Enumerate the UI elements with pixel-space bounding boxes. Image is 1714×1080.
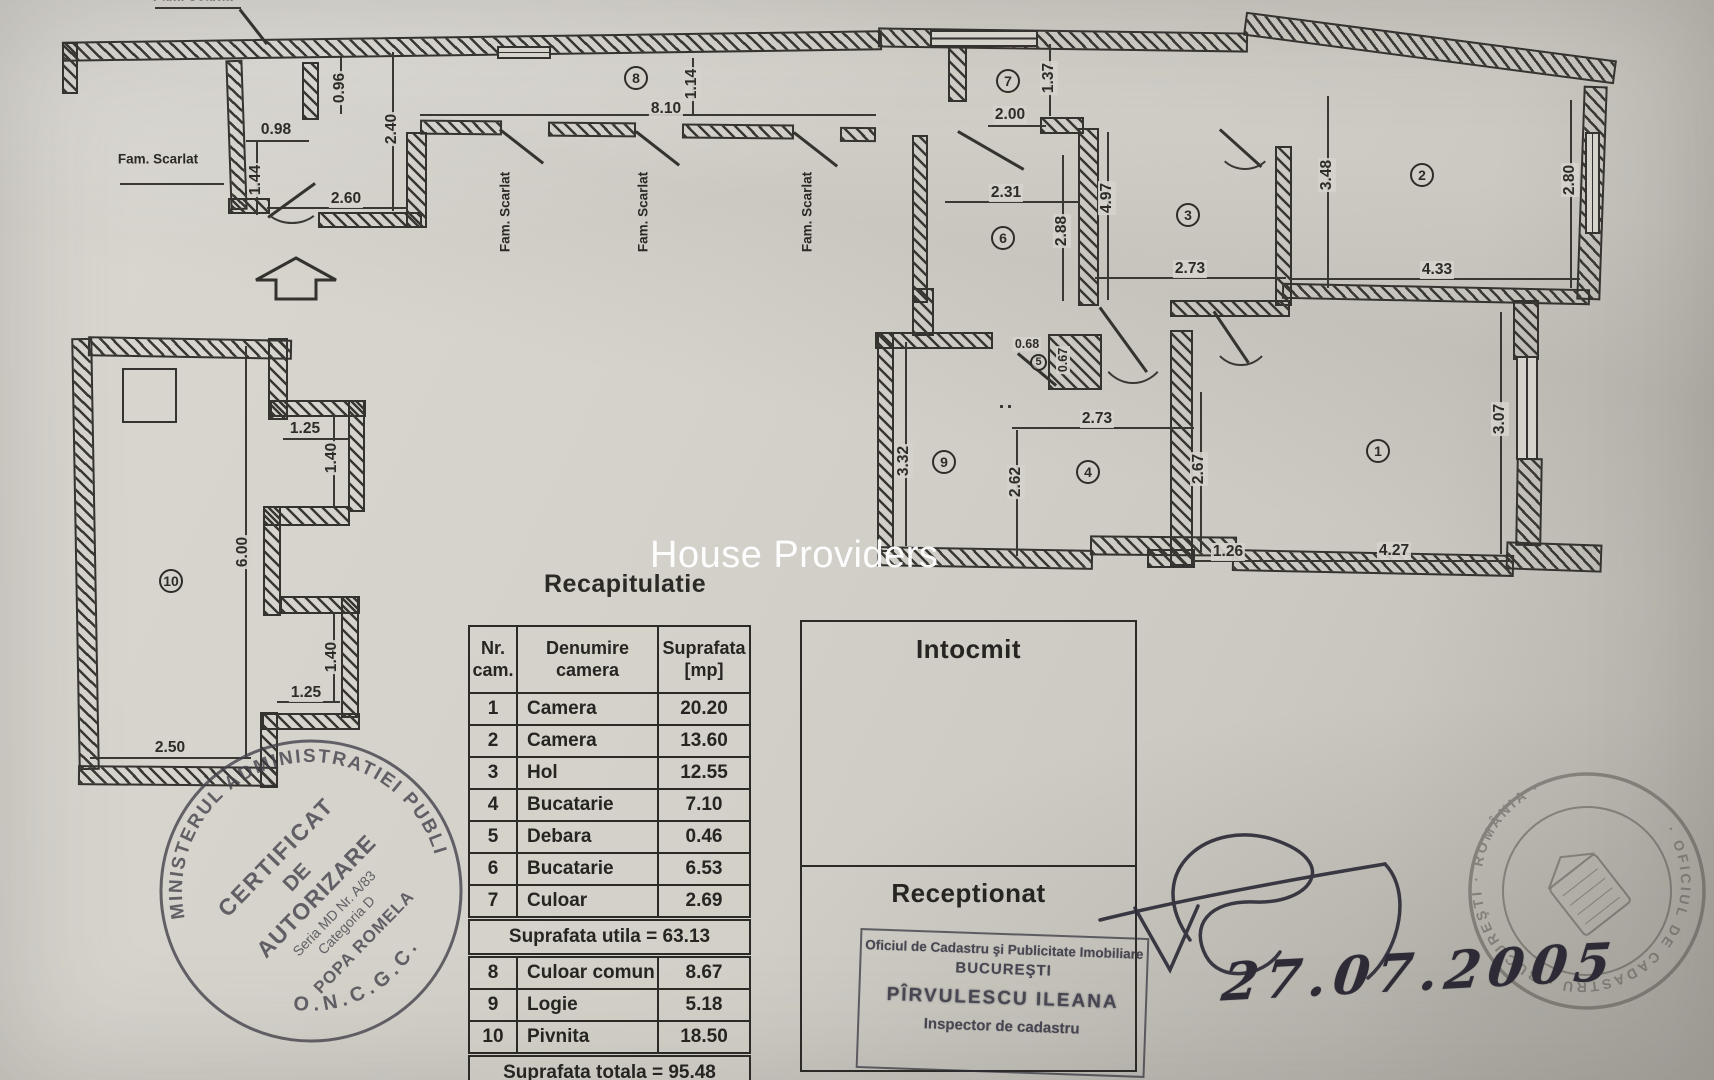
window <box>122 368 177 423</box>
dimension-line <box>1000 405 1003 408</box>
wall-segment <box>88 336 292 360</box>
cell-suprafata: 5.18 <box>658 989 750 1021</box>
subtotal-label: Suprafata utila = 63.13 <box>469 919 750 956</box>
wall-segment <box>1170 330 1193 566</box>
dimension-label: 2.50 <box>153 739 187 757</box>
wall-segment <box>420 120 502 136</box>
family-owner-label: Fam. Scarlat <box>153 0 233 4</box>
dimension-label: 1.26 <box>1211 543 1245 561</box>
dimension-label: 2.67 <box>1190 452 1208 486</box>
col-header-nr: Nr. cam. <box>469 626 517 693</box>
window <box>1585 132 1600 234</box>
cell-denumire: Culoar <box>517 885 658 919</box>
room-number-marker: 6 <box>991 226 1015 250</box>
cell-denumire: Pivnita <box>517 1021 658 1055</box>
room-number-marker: 4 <box>1076 460 1100 484</box>
cell-suprafata: 8.67 <box>658 956 750 990</box>
cell-suprafata: 0.46 <box>658 821 750 853</box>
room-number-marker: 10 <box>159 569 183 593</box>
wall-segment <box>682 124 794 140</box>
dimension-line <box>155 7 241 9</box>
entrance-arrow-icon <box>254 256 338 302</box>
cell-nr: 4 <box>469 789 517 821</box>
dimension-label: 4.97 <box>1098 181 1116 215</box>
door-leaf-line <box>793 131 838 167</box>
table-row: 1Camera20.20 <box>469 693 750 725</box>
dimension-label: 1.25 <box>288 420 322 438</box>
col-header-suprafata: Suprafata [mp] <box>658 626 750 693</box>
dimension-label: 1.37 <box>1040 61 1058 95</box>
total-row: Suprafata totala = 95.48 <box>469 1055 750 1080</box>
cell-denumire: Logie <box>517 989 658 1021</box>
table-row: 4Bucatarie7.10 <box>469 789 750 821</box>
wall-segment <box>877 332 894 552</box>
wall-segment <box>406 132 427 228</box>
dimension-label: 2.62 <box>1007 465 1025 499</box>
door-swing-arc <box>262 180 322 224</box>
cell-suprafata: 13.60 <box>658 725 750 757</box>
cell-nr: 1 <box>469 693 517 725</box>
col-header-denumire: Denumire camera <box>517 626 658 693</box>
table-row: 6Bucatarie6.53 <box>469 853 750 885</box>
scanned-floor-plan-document: 0.960.982.401.442.608.101.142.001.372.31… <box>0 0 1714 1080</box>
family-owner-label: Fam. Scarlat <box>636 172 651 252</box>
wall-segment <box>225 60 247 211</box>
room-number-marker: 1 <box>1366 439 1390 463</box>
total-label: Suprafata totala = 95.48 <box>469 1055 750 1080</box>
cell-suprafata: 7.10 <box>658 789 750 821</box>
dimension-label: 2.00 <box>993 106 1027 124</box>
cell-denumire: Camera <box>517 693 658 725</box>
cell-nr: 10 <box>469 1021 517 1055</box>
table-row: 5Debara0.46 <box>469 821 750 853</box>
wall-segment <box>1515 458 1543 546</box>
cell-denumire: Bucatarie <box>517 853 658 885</box>
dimension-line <box>120 183 224 185</box>
table-row: 2Camera13.60 <box>469 725 750 757</box>
dimension-label: 1.40 <box>323 640 341 674</box>
room-number-marker: 5 <box>1030 354 1047 371</box>
cell-suprafata: 6.53 <box>658 853 750 885</box>
dimension-line <box>1267 560 1511 562</box>
dimension-label: 0.68 <box>1013 337 1041 351</box>
dimension-label: 3.07 <box>1491 402 1509 436</box>
family-owner-label: Fam. Scarlat <box>118 152 198 167</box>
dimension-line <box>283 438 348 440</box>
wall-segment <box>948 38 967 102</box>
dimension-label: 1.25 <box>289 684 323 702</box>
dimension-label: 0.67 <box>1056 346 1070 374</box>
dimension-label: 2.73 <box>1080 410 1114 428</box>
dimension-label: 2.31 <box>989 184 1023 202</box>
door-leaf-line <box>635 130 680 166</box>
cell-suprafata: 20.20 <box>658 693 750 725</box>
table-row: 8Culoar comun8.67 <box>469 956 750 990</box>
dimension-label: 0.96 <box>331 71 349 105</box>
dimension-line <box>988 125 1046 127</box>
window <box>930 30 1038 47</box>
wall-segment <box>1275 146 1292 306</box>
wall-segment <box>840 127 876 142</box>
family-owner-label: Fam. Scarlat <box>800 172 815 252</box>
dimension-label: 1.40 <box>323 441 341 475</box>
door-leaf-line <box>957 130 1024 170</box>
dimension-label: 8.10 <box>649 100 683 118</box>
cell-nr: 2 <box>469 725 517 757</box>
wall-segment <box>912 135 928 303</box>
dimension-label: 6.00 <box>234 535 252 569</box>
cell-nr: 3 <box>469 757 517 789</box>
wall-segment <box>1232 549 1514 577</box>
room-number-marker: 9 <box>932 450 956 474</box>
subtotal-row: Suprafata utila = 63.13 <box>469 919 750 956</box>
wall-segment <box>263 506 281 616</box>
wall-segment <box>62 30 882 61</box>
room-number-marker: 8 <box>624 66 648 90</box>
wall-segment <box>71 338 100 770</box>
table-row: 10Pivnita18.50 <box>469 1021 750 1055</box>
dimension-label: 4.27 <box>1377 542 1411 560</box>
dimension-label: 3.48 <box>1318 158 1336 192</box>
door-swing-arc <box>1096 300 1170 384</box>
intocmit-label: Intocmit <box>802 634 1135 665</box>
cell-suprafata: 18.50 <box>658 1021 750 1055</box>
table-row: 3Hol12.55 <box>469 757 750 789</box>
recap-table: Nr. cam. Denumire camera Suprafata [mp] … <box>468 625 751 1080</box>
dimension-label: 2.40 <box>383 112 401 146</box>
door-leaf-line <box>499 128 544 164</box>
cell-denumire: Debara <box>517 821 658 853</box>
dimension-label: 4.33 <box>1420 261 1454 279</box>
family-owner-label: Fam. Scarlat <box>498 172 513 252</box>
door-swing-arc <box>1210 302 1272 366</box>
room-number-marker: 3 <box>1176 203 1200 227</box>
cell-denumire: Culoar comun <box>517 956 658 990</box>
table-header-row: Nr. cam. Denumire camera Suprafata [mp] <box>469 626 750 693</box>
room-number-marker: 2 <box>1410 163 1434 187</box>
cell-denumire: Camera <box>517 725 658 757</box>
cell-denumire: Hol <box>517 757 658 789</box>
table-row: 9Logie5.18 <box>469 989 750 1021</box>
door-swing-arc <box>1216 118 1274 170</box>
window <box>497 46 551 59</box>
cell-nr: 5 <box>469 821 517 853</box>
table-row: 7Culoar2.69 <box>469 885 750 919</box>
wall-segment <box>341 596 359 718</box>
watermark: House Providers <box>650 534 938 577</box>
dimension-label: 1.44 <box>247 163 265 197</box>
wall-segment <box>348 400 365 512</box>
cell-suprafata: 12.55 <box>658 757 750 789</box>
dimension-line <box>1008 405 1011 408</box>
dimension-line <box>1107 132 1109 300</box>
cell-suprafata: 2.69 <box>658 885 750 919</box>
window <box>1516 356 1538 460</box>
wall-segment <box>548 122 636 138</box>
wall-segment <box>1506 541 1603 572</box>
wall-segment <box>1078 128 1099 306</box>
dimension-label: 2.60 <box>329 190 363 208</box>
wall-segment <box>1513 300 1539 360</box>
cell-denumire: Bucatarie <box>517 789 658 821</box>
dimension-label: 2.80 <box>1561 163 1579 197</box>
room-number-marker: 7 <box>996 69 1020 93</box>
dimension-label: 2.73 <box>1173 260 1207 278</box>
dimension-label: 0.98 <box>259 121 293 139</box>
wall-segment <box>1243 12 1617 85</box>
wall-segment <box>875 332 993 349</box>
dimension-label: 1.14 <box>683 67 701 101</box>
dimension-label: 3.32 <box>895 444 913 478</box>
dimension-label: 2.88 <box>1053 214 1071 248</box>
wall-segment <box>62 42 78 94</box>
cell-nr: 6 <box>469 853 517 885</box>
wall-segment <box>302 62 319 120</box>
